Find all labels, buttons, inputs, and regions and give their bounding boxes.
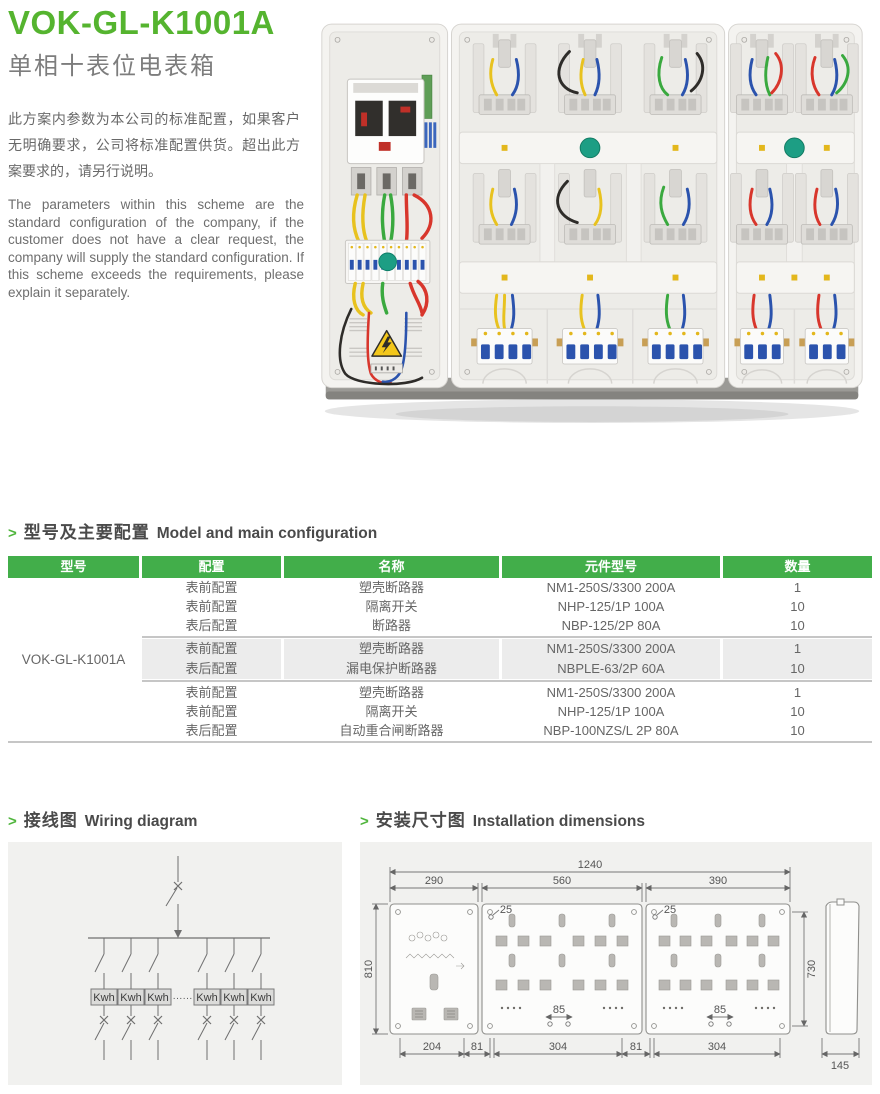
table-cell: NHP-125/1P 100A: [502, 702, 720, 721]
config-section-title: > 型号及主要配置 Model and main configuration: [8, 518, 377, 543]
table-cell: 断路器: [284, 616, 499, 635]
table-cell: 隔离开关: [284, 597, 499, 616]
col-header-model: 型号: [8, 556, 139, 578]
dims-title-zh: 安装尺寸图: [376, 806, 466, 831]
svg-text:81: 81: [630, 1041, 642, 1053]
table-cell: NBP-100NZS/L 2P 80A: [502, 721, 720, 740]
table-cell: 表前配置: [142, 639, 281, 659]
table-cell: 隔离开关: [284, 702, 499, 721]
table-cell: 表前配置: [142, 578, 281, 597]
svg-text:204: 204: [423, 1041, 441, 1053]
svg-text:Kwh: Kwh: [196, 992, 217, 1004]
table-cell: 10: [723, 721, 872, 740]
intro-paragraph-zh: 此方案内参数为本公司的标准配置，如果客户无明确要求，公司将标准配置供货。超出此方…: [8, 106, 300, 184]
svg-text:Kwh: Kwh: [93, 992, 114, 1004]
svg-text:1240: 1240: [578, 859, 602, 871]
table-cell: 1: [723, 683, 872, 702]
table-cell: 表前配置: [142, 683, 281, 702]
table-cell: 表前配置: [142, 597, 281, 616]
config-title-en: Model and main configuration: [157, 525, 377, 543]
meter-box-illustration: [312, 18, 872, 431]
svg-text:Kwh: Kwh: [147, 992, 168, 1004]
table-cell: NBPLE-63/2P 60A: [502, 659, 720, 679]
intro-paragraph-en: The parameters within this scheme are th…: [8, 196, 304, 302]
ellipsis: ······: [173, 993, 193, 1004]
table-cell: 10: [723, 702, 872, 721]
group-separator: [142, 680, 872, 682]
table-cell: 自动重合闸断路器: [284, 721, 499, 740]
wiring-title-zh: 接线图: [24, 806, 78, 831]
svg-text:Kwh: Kwh: [250, 992, 271, 1004]
dimensions-section-title: > 安装尺寸图 Installation dimensions: [360, 806, 645, 831]
seal-button: [785, 138, 805, 158]
seal-button: [580, 138, 600, 158]
svg-text:390: 390: [709, 875, 727, 887]
table-cell: 塑壳断路器: [284, 578, 499, 597]
table-cell: NHP-125/1P 100A: [502, 597, 720, 616]
installation-dimensions-drawing: 1240 290 560 390 810 730 25 25 85 85 204…: [360, 842, 872, 1085]
wiring-section-title: > 接线图 Wiring diagram: [8, 806, 197, 831]
section-arrow-icon: >: [8, 813, 17, 830]
dims-title-en: Installation dimensions: [473, 813, 645, 831]
svg-text:290: 290: [425, 875, 443, 887]
table-cell: NBP-125/2P 80A: [502, 616, 720, 635]
svg-text:25: 25: [500, 904, 512, 916]
svg-text:304: 304: [708, 1041, 726, 1053]
table-cell: 1: [723, 639, 872, 659]
table-cell: NM1-250S/3300 200A: [502, 578, 720, 597]
product-photo: [312, 18, 872, 438]
svg-text:85: 85: [714, 1004, 726, 1016]
svg-text:304: 304: [549, 1041, 567, 1053]
table-cell: 表前配置: [142, 702, 281, 721]
table-cell: 10: [723, 659, 872, 679]
config-title-zh: 型号及主要配置: [24, 518, 150, 543]
table-cell: 10: [723, 616, 872, 635]
col-header-name: 名称: [284, 556, 499, 578]
svg-text:Kwh: Kwh: [223, 992, 244, 1004]
model-cell: VOK-GL-K1001A: [8, 578, 139, 740]
col-header-qty: 数量: [723, 556, 872, 578]
table-cell: 10: [723, 597, 872, 616]
table-cell: NM1-250S/3300 200A: [502, 683, 720, 702]
table-cell: 1: [723, 578, 872, 597]
col-header-config: 配置: [142, 556, 281, 578]
svg-text:145: 145: [831, 1060, 849, 1072]
svg-text:81: 81: [471, 1041, 483, 1053]
col-header-part: 元件型号: [502, 556, 720, 578]
svg-text:25: 25: [664, 904, 676, 916]
table-cell: 塑壳断路器: [284, 639, 499, 659]
wiring-diagram: Kwh Kwh Kwh Kwh Kwh Kwh ······: [8, 842, 342, 1085]
table-cell: 漏电保护断路器: [284, 659, 499, 679]
table-bottom-border: [8, 741, 872, 743]
table-cell: 塑壳断路器: [284, 683, 499, 702]
page-title: VOK-GL-K1001A: [8, 4, 275, 42]
section-arrow-icon: >: [8, 525, 17, 542]
page-subtitle: 单相十表位电表箱: [8, 46, 216, 81]
section-arrow-icon: >: [360, 813, 369, 830]
seal-button: [379, 253, 397, 271]
wiring-title-en: Wiring diagram: [85, 813, 198, 831]
table-cell: 表后配置: [142, 616, 281, 635]
table-cell: NM1-250S/3300 200A: [502, 639, 720, 659]
svg-text:730: 730: [806, 960, 818, 978]
table-cell: 表后配置: [142, 721, 281, 740]
table-cell: 表后配置: [142, 659, 281, 679]
config-table: 型号 配置 名称 元件型号 数量 VOK-GL-K1001A 表前配置 塑壳断路…: [8, 556, 872, 744]
group-separator: [142, 636, 872, 638]
svg-text:560: 560: [553, 875, 571, 887]
svg-text:Kwh: Kwh: [120, 992, 141, 1004]
svg-text:810: 810: [363, 960, 375, 978]
svg-text:85: 85: [553, 1004, 565, 1016]
